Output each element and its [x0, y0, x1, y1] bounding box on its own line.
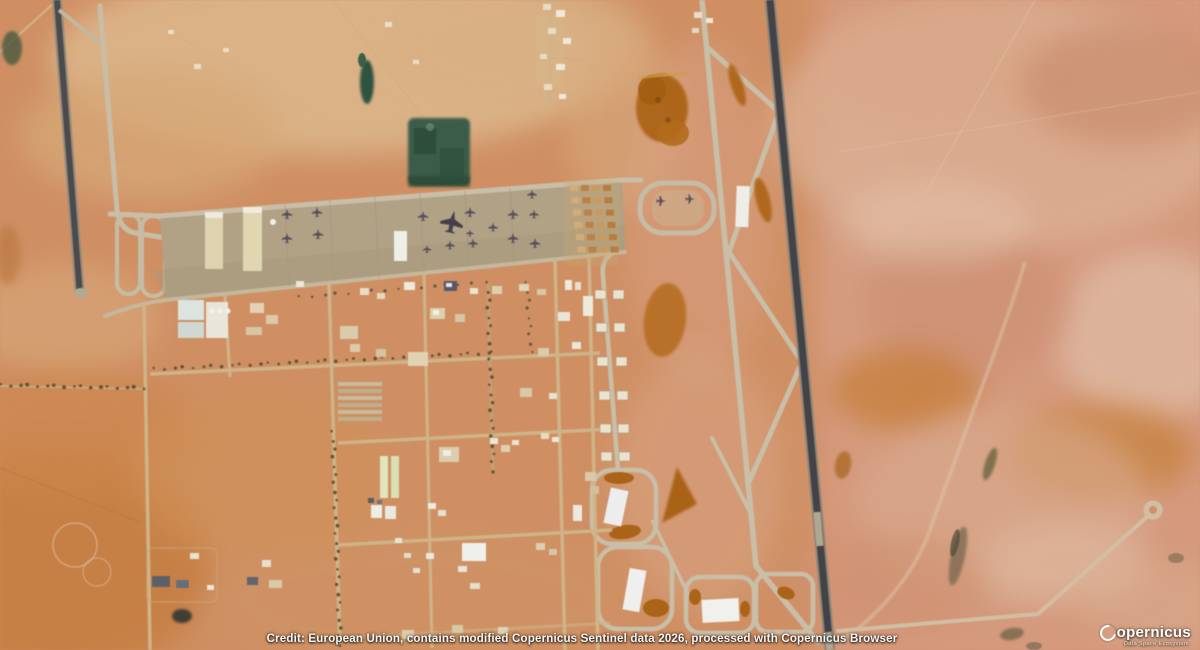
- 36: [249, 364, 252, 367]
- building: [385, 506, 396, 519]
- 36: [238, 363, 241, 366]
- 23: [488, 317, 491, 320]
- ground-patches-shape: [665, 117, 671, 123]
- building: [558, 312, 570, 321]
- ground-patches-shape: [414, 128, 436, 154]
- 17: [73, 385, 76, 388]
- greenhouse: [338, 410, 382, 414]
- storage-grid: [586, 222, 594, 228]
- building: [246, 327, 262, 335]
- building: [266, 315, 278, 324]
- 23: [485, 281, 488, 284]
- 26: [335, 499, 338, 502]
- storage-grid: [581, 185, 589, 191]
- 26: [332, 481, 335, 484]
- 17: [116, 387, 119, 390]
- copernicus-subtitle: Data Space Ecosystem: [1100, 642, 1191, 648]
- terrain-shape: [840, 180, 1030, 264]
- 23: [489, 434, 492, 437]
- building: [428, 503, 436, 509]
- building: [368, 498, 374, 503]
- bare-soil: [604, 472, 634, 484]
- 36: [306, 361, 308, 363]
- 36: [192, 367, 194, 369]
- building: [538, 348, 549, 356]
- 26: [330, 430, 333, 433]
- vegetation: [2, 31, 22, 65]
- 36: [152, 367, 154, 369]
- 15: [383, 289, 386, 292]
- 23: [490, 419, 493, 422]
- 15: [420, 286, 423, 289]
- 36: [391, 357, 394, 360]
- building: [455, 314, 465, 322]
- building: [413, 568, 420, 573]
- building: [223, 48, 229, 52]
- building: [377, 500, 382, 504]
- building: [190, 553, 199, 559]
- building: [340, 326, 358, 339]
- aircraft-shelter: [597, 357, 608, 366]
- 36: [220, 365, 224, 369]
- storage-grid: [573, 210, 581, 216]
- 9: [531, 351, 533, 353]
- building: [541, 433, 549, 439]
- copernicus-wordmark: opernicus: [1117, 625, 1191, 640]
- 23: [490, 444, 494, 448]
- town-buildings-shape: [536, 14, 564, 88]
- building: [269, 580, 282, 588]
- aircraft-shelter: [613, 290, 624, 299]
- building: [573, 505, 582, 521]
- storage-tank: [226, 309, 231, 314]
- 23: [491, 470, 494, 473]
- 17: [79, 384, 82, 387]
- building: [247, 577, 258, 585]
- ground-patches-shape: [426, 123, 434, 131]
- 26: [335, 542, 338, 545]
- building: [385, 22, 392, 27]
- building: [446, 283, 452, 287]
- 23: [488, 383, 491, 386]
- building: [512, 440, 519, 445]
- building: [540, 54, 547, 59]
- 36: [295, 359, 299, 363]
- 23: [493, 453, 496, 456]
- 17: [19, 384, 23, 388]
- 15: [370, 289, 373, 292]
- storage-grid: [597, 222, 605, 228]
- 36: [402, 356, 405, 359]
- 26: [339, 601, 342, 604]
- building: [552, 437, 559, 442]
- building: [404, 282, 415, 290]
- 36: [203, 365, 206, 368]
- aircraft-shelter: [616, 357, 627, 366]
- 36: [345, 359, 347, 361]
- building: [590, 486, 599, 494]
- 9: [529, 343, 532, 346]
- airfield-structures-shape: [243, 207, 262, 213]
- 36: [323, 358, 326, 361]
- storage-grid: [595, 210, 603, 216]
- 17: [46, 384, 49, 387]
- 26: [331, 455, 335, 459]
- storage-grid: [600, 247, 608, 253]
- hangar: [701, 598, 739, 623]
- building: [692, 28, 699, 33]
- hangar: [205, 212, 223, 269]
- 36: [431, 354, 434, 357]
- 23: [488, 342, 492, 346]
- building: [543, 4, 551, 10]
- 36: [460, 353, 462, 355]
- barracks: [391, 456, 399, 498]
- 36: [334, 359, 338, 363]
- satellite-imagery: [0, 0, 1200, 650]
- 26: [338, 575, 341, 578]
- 26: [334, 516, 337, 519]
- 26: [333, 466, 336, 469]
- storage-grid: [575, 222, 583, 228]
- 26: [334, 473, 337, 476]
- apron-marking: [270, 219, 276, 225]
- storage-grid: [587, 234, 595, 240]
- building: [470, 288, 478, 294]
- storage-grid: [594, 197, 602, 203]
- 23: [487, 358, 490, 361]
- storage-grid: [578, 247, 586, 253]
- water-treatment: [178, 322, 204, 338]
- 17: [36, 385, 39, 388]
- building: [360, 288, 369, 295]
- 17: [99, 385, 103, 389]
- 15: [311, 296, 314, 299]
- building: [443, 450, 451, 456]
- 15: [397, 288, 399, 290]
- 26: [336, 609, 339, 612]
- building: [572, 342, 581, 349]
- ground-patches-shape: [440, 148, 464, 176]
- attribution-text: Credit: European Union, contains modifie…: [267, 633, 898, 645]
- building: [371, 505, 382, 518]
- building: [536, 543, 545, 550]
- building: [537, 289, 546, 295]
- 23: [489, 324, 492, 327]
- greenhouse: [338, 417, 382, 421]
- building: [492, 286, 502, 294]
- 23: [488, 408, 492, 412]
- bare-soil: [740, 601, 750, 617]
- bare-soil: [643, 599, 669, 617]
- greenhouse: [338, 389, 382, 393]
- building: [438, 510, 446, 516]
- aircraft-shelter: [596, 323, 607, 332]
- 26: [337, 550, 340, 553]
- 17: [25, 383, 29, 387]
- 23: [489, 368, 492, 371]
- 26: [337, 619, 340, 622]
- 36: [259, 362, 263, 366]
- terrain-shape: [130, 390, 390, 560]
- aircraft-shelter: [618, 424, 629, 433]
- 23: [486, 332, 489, 335]
- building: [575, 282, 581, 290]
- building: [556, 10, 565, 17]
- 26: [336, 524, 340, 528]
- 26: [336, 568, 339, 571]
- 36: [488, 351, 492, 355]
- 23: [487, 291, 490, 294]
- bare-soil: [638, 75, 666, 105]
- building: [296, 281, 304, 287]
- 36: [277, 363, 280, 366]
- copernicus-logo: opernicus Data Space Ecosystem: [1100, 625, 1191, 648]
- airfield-structures-shape: [205, 212, 223, 218]
- building: [556, 64, 565, 70]
- copernicus-c-icon: [1096, 621, 1118, 643]
- building: [490, 438, 498, 444]
- 26: [336, 593, 340, 597]
- satellite-map-view: Credit: European Union, contains modifie…: [0, 0, 1200, 650]
- apron-building: [394, 231, 407, 261]
- 23: [489, 394, 492, 397]
- 23: [490, 460, 493, 463]
- greenhouse: [338, 403, 382, 407]
- 17: [62, 385, 66, 389]
- building: [462, 543, 486, 561]
- 23: [492, 427, 495, 430]
- 26: [334, 557, 338, 561]
- building: [395, 538, 402, 543]
- building: [194, 64, 201, 69]
- building: [519, 284, 529, 291]
- 26: [339, 626, 343, 630]
- building: [404, 553, 411, 558]
- hangar: [243, 207, 262, 271]
- 36: [317, 360, 320, 363]
- building: [565, 280, 572, 290]
- building: [413, 60, 419, 64]
- storage-grid: [572, 197, 580, 203]
- 9: [528, 299, 531, 302]
- building: [168, 30, 174, 34]
- 9: [530, 325, 533, 328]
- building: [706, 18, 713, 23]
- ground-patches-shape: [655, 97, 661, 103]
- building: [549, 549, 557, 555]
- 9: [526, 291, 529, 294]
- 23: [485, 306, 489, 310]
- water-treatment: [206, 302, 228, 338]
- 9: [527, 332, 530, 335]
- airfield-pavement-shape: [652, 190, 704, 226]
- storage-grid: [592, 185, 600, 191]
- building: [520, 388, 532, 397]
- runway-threshold: [817, 512, 820, 546]
- aircraft-shelter: [601, 452, 612, 461]
- building: [262, 560, 271, 567]
- aircraft-shelter: [619, 452, 630, 461]
- 36: [373, 357, 377, 361]
- 26: [333, 506, 336, 509]
- storage-grid: [605, 197, 613, 203]
- building: [250, 303, 264, 313]
- dark-terrain-streak: [1168, 553, 1184, 563]
- 26: [333, 491, 337, 495]
- building: [544, 84, 552, 90]
- apron-building: [735, 186, 749, 227]
- 36: [180, 365, 184, 369]
- storage-grid: [603, 185, 611, 191]
- 36: [466, 352, 469, 355]
- 17: [143, 388, 146, 391]
- aircraft-shelter: [595, 290, 606, 299]
- storage-grid: [584, 210, 592, 216]
- bare-soil: [657, 120, 689, 146]
- 36: [163, 368, 166, 371]
- building: [377, 293, 385, 299]
- barracks: [380, 456, 388, 498]
- building: [501, 445, 510, 452]
- storage-grid: [583, 197, 591, 203]
- greenhouse: [338, 382, 382, 386]
- 15: [470, 282, 473, 285]
- building: [350, 344, 360, 352]
- building: [548, 28, 556, 34]
- storage-grid: [611, 247, 619, 253]
- 26: [335, 583, 338, 586]
- bare-soil: [689, 589, 701, 605]
- 15: [297, 295, 299, 297]
- building: [433, 310, 439, 315]
- storage-tank: [210, 309, 215, 314]
- 17: [126, 386, 130, 390]
- aircraft-shelter: [599, 391, 610, 400]
- 36: [209, 364, 212, 367]
- 9: [528, 317, 530, 319]
- 17: [132, 385, 136, 389]
- desert-tracks-shape: [1149, 506, 1157, 514]
- 15: [333, 291, 336, 294]
- 36: [437, 353, 440, 356]
- 23: [491, 401, 494, 404]
- 36: [477, 353, 480, 356]
- building: [585, 472, 596, 481]
- 17: [106, 385, 109, 388]
- storage-grid: [609, 234, 617, 240]
- 23: [488, 298, 491, 301]
- 36: [174, 367, 177, 370]
- building: [408, 352, 428, 366]
- storage-grid: [589, 247, 597, 253]
- 36: [267, 361, 269, 363]
- 15: [324, 294, 327, 297]
- building: [152, 576, 170, 587]
- storage-grid: [576, 234, 584, 240]
- 26: [332, 440, 335, 443]
- building: [549, 393, 557, 399]
- dark-patch: [172, 609, 192, 623]
- storage-grid: [608, 222, 616, 228]
- 17: [52, 383, 56, 387]
- aircraft-shelter: [614, 323, 625, 332]
- 23: [490, 375, 494, 379]
- east-terrain-marks-shape: [1026, 642, 1042, 650]
- building: [583, 296, 593, 316]
- building: [426, 553, 434, 559]
- 26: [333, 447, 336, 450]
- building: [563, 38, 571, 44]
- storage-grid: [606, 210, 614, 216]
- 26: [334, 532, 337, 535]
- water-treatment: [178, 300, 204, 320]
- 36: [448, 354, 452, 358]
- building: [458, 566, 467, 572]
- 36: [352, 357, 355, 360]
- building: [452, 625, 463, 633]
- aircraft-shelter: [617, 391, 628, 400]
- building: [559, 94, 566, 99]
- storage-grid: [598, 234, 606, 240]
- 9: [525, 306, 528, 309]
- 17: [89, 386, 93, 390]
- building: [207, 585, 214, 590]
- building: [694, 12, 702, 18]
- runway-turnpad: [74, 288, 88, 298]
- 9: [524, 281, 526, 283]
- 17: [9, 385, 12, 388]
- greenhouse: [338, 396, 382, 400]
- vegetation: [358, 53, 366, 67]
- aircraft-shelter: [600, 424, 611, 433]
- ground-patches-shape: [408, 176, 470, 187]
- 15: [347, 293, 349, 295]
- 36: [231, 364, 233, 366]
- storage-grid: [570, 185, 578, 191]
- building: [376, 349, 386, 357]
- 15: [433, 284, 436, 287]
- storage-tank: [218, 309, 223, 314]
- 36: [363, 358, 366, 361]
- building: [176, 580, 189, 588]
- building: [470, 583, 480, 589]
- 36: [288, 361, 291, 364]
